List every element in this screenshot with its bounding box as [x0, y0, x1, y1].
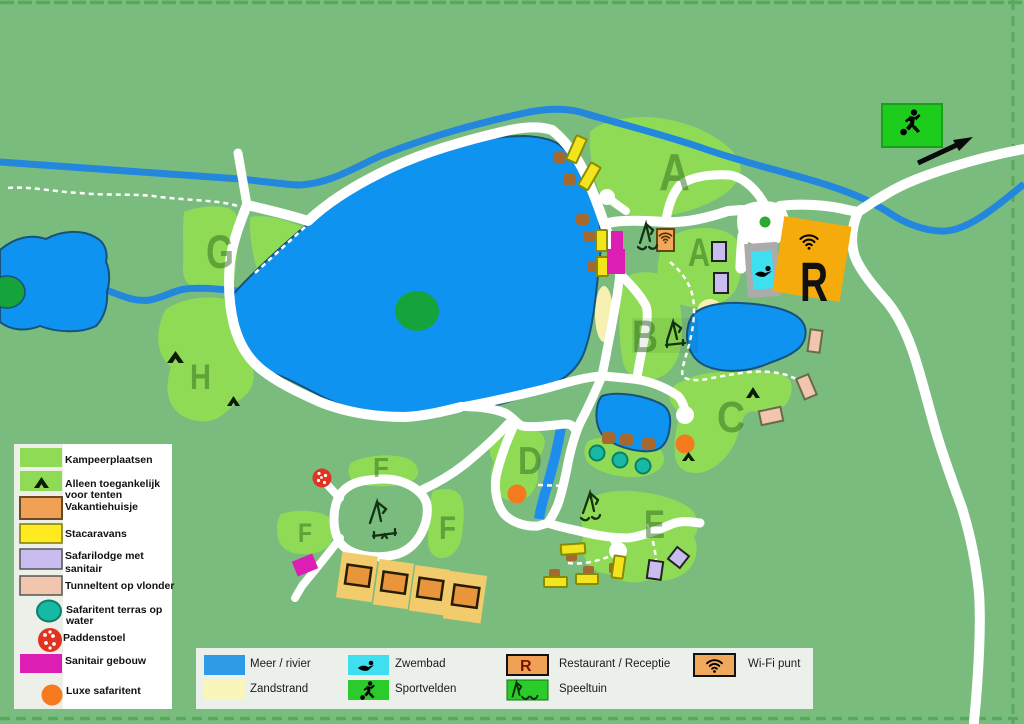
- svg-text:Meer / rivier: Meer / rivier: [250, 658, 311, 670]
- svg-text:Luxe safaritent: Luxe safaritent: [66, 685, 141, 697]
- svg-text:B: B: [632, 311, 658, 362]
- svg-text:R: R: [800, 250, 828, 313]
- svg-text:A: A: [688, 231, 710, 275]
- svg-text:F: F: [298, 518, 312, 548]
- svg-text:Stacaravans: Stacaravans: [65, 528, 127, 540]
- svg-text:Tunneltent op vlonder: Tunneltent op vlonder: [65, 580, 174, 592]
- svg-text:C: C: [717, 393, 745, 442]
- svg-text:F: F: [439, 510, 456, 546]
- svg-text:A: A: [659, 144, 690, 202]
- svg-text:Zandstrand: Zandstrand: [250, 683, 308, 695]
- svg-text:Kampeerplaatsen: Kampeerplaatsen: [65, 454, 153, 466]
- svg-text:Vakantiehuisje: Vakantiehuisje: [65, 501, 138, 513]
- svg-text:water: water: [65, 615, 93, 627]
- svg-text:G: G: [206, 225, 234, 278]
- svg-text:sanitair: sanitair: [65, 563, 102, 575]
- svg-text:Speeltuin: Speeltuin: [559, 683, 607, 695]
- svg-text:Sanitair gebouw: Sanitair gebouw: [65, 655, 147, 667]
- svg-text:Sportvelden: Sportvelden: [395, 683, 456, 695]
- svg-text:E: E: [644, 503, 665, 547]
- svg-text:F: F: [373, 452, 389, 483]
- svg-text:Restaurant / Receptie: Restaurant / Receptie: [559, 658, 670, 670]
- svg-text:H: H: [190, 358, 211, 397]
- svg-text:Paddenstoel: Paddenstoel: [63, 632, 126, 644]
- svg-text:D: D: [518, 440, 542, 483]
- svg-text:R: R: [520, 658, 532, 675]
- svg-text:Safarilodge met: Safarilodge met: [65, 550, 144, 562]
- svg-text:Zwembad: Zwembad: [395, 658, 446, 670]
- svg-text:voor tenten: voor tenten: [65, 489, 122, 501]
- svg-text:Wi-Fi punt: Wi-Fi punt: [748, 658, 801, 670]
